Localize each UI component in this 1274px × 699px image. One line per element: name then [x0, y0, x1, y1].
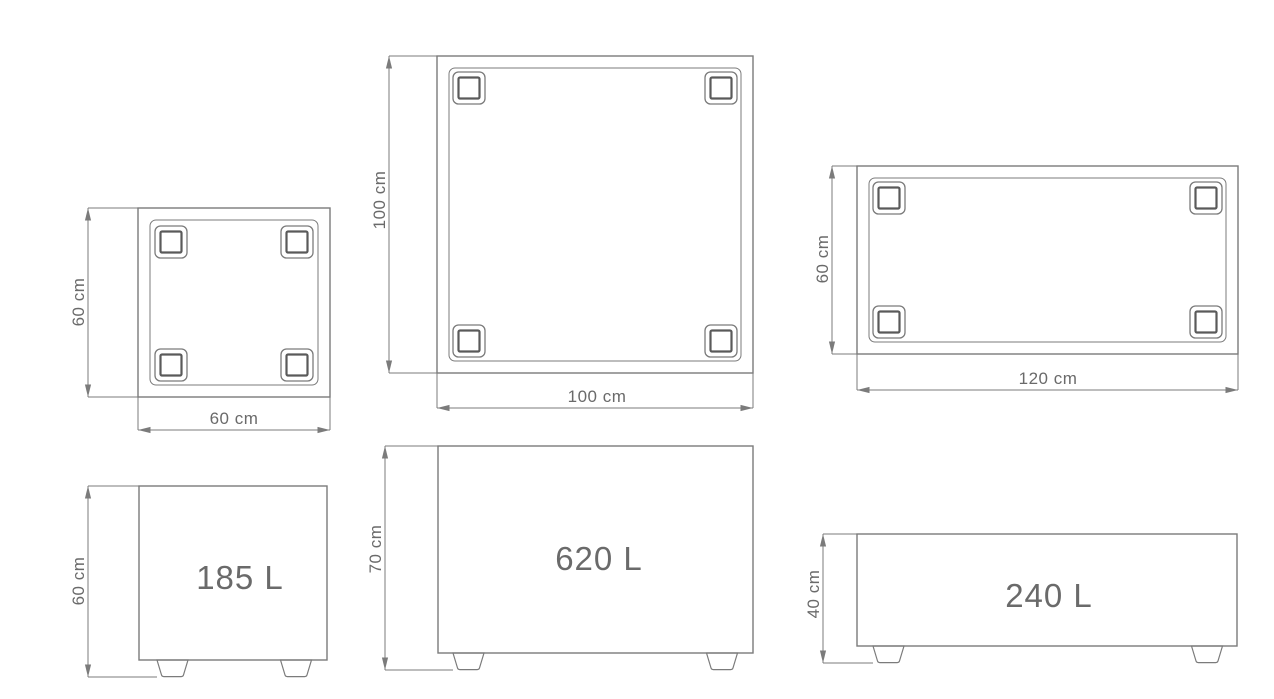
planter-outline [437, 56, 753, 373]
depth-dimension-label: 60 cm [69, 278, 88, 327]
foot-pad [1190, 306, 1222, 338]
planter-rim-line [869, 178, 1226, 342]
foot [1192, 646, 1223, 663]
planter-dimensions-diagram: 60 cm 60 cm 100 cm 100 cm 60 cm 120 cm [0, 0, 1274, 699]
front-view-small: 60 cm 185 L [69, 486, 327, 677]
bottom-view-small: 60 cm 60 cm [69, 208, 330, 430]
foot-pad [281, 226, 313, 258]
planter-rim-line [150, 220, 318, 385]
planter-outline [138, 208, 330, 397]
front-view-medium: 70 cm 620 L [366, 446, 753, 670]
foot [873, 646, 904, 663]
foot-pad [281, 349, 313, 381]
foot [157, 660, 188, 677]
planter-rim-line [449, 68, 741, 361]
width-dimension-label: 100 cm [568, 387, 627, 406]
extension-line [88, 208, 138, 397]
height-dimension-label: 60 cm [69, 557, 88, 606]
extension-line [88, 486, 157, 677]
foot [453, 653, 484, 670]
width-dimension-label: 120 cm [1019, 369, 1078, 388]
foot-pad [453, 325, 485, 357]
foot-pad [155, 226, 187, 258]
foot [707, 653, 738, 670]
extension-line [385, 446, 453, 670]
planter-outline [857, 166, 1238, 354]
foot-pad [873, 182, 905, 214]
bottom-view-medium: 100 cm 100 cm [370, 56, 753, 408]
volume-label: 240 L [1005, 577, 1093, 614]
width-dimension-label: 60 cm [210, 409, 259, 428]
volume-label: 185 L [196, 559, 284, 596]
height-dimension-label: 40 cm [804, 570, 823, 619]
foot-pad [873, 306, 905, 338]
foot-pad [453, 72, 485, 104]
depth-dimension-label: 100 cm [370, 171, 389, 230]
foot-pad [705, 72, 737, 104]
foot-pad [1190, 182, 1222, 214]
foot-pad [155, 349, 187, 381]
volume-label: 620 L [555, 540, 643, 577]
foot [281, 660, 312, 677]
depth-dimension-label: 60 cm [813, 235, 832, 284]
front-view-wide: 40 cm 240 L [804, 534, 1237, 663]
extension-line [389, 56, 437, 373]
height-dimension-label: 70 cm [366, 525, 385, 574]
foot-pad [705, 325, 737, 357]
bottom-view-wide: 60 cm 120 cm [813, 166, 1238, 390]
extension-line [823, 534, 873, 663]
extension-line [832, 166, 857, 354]
